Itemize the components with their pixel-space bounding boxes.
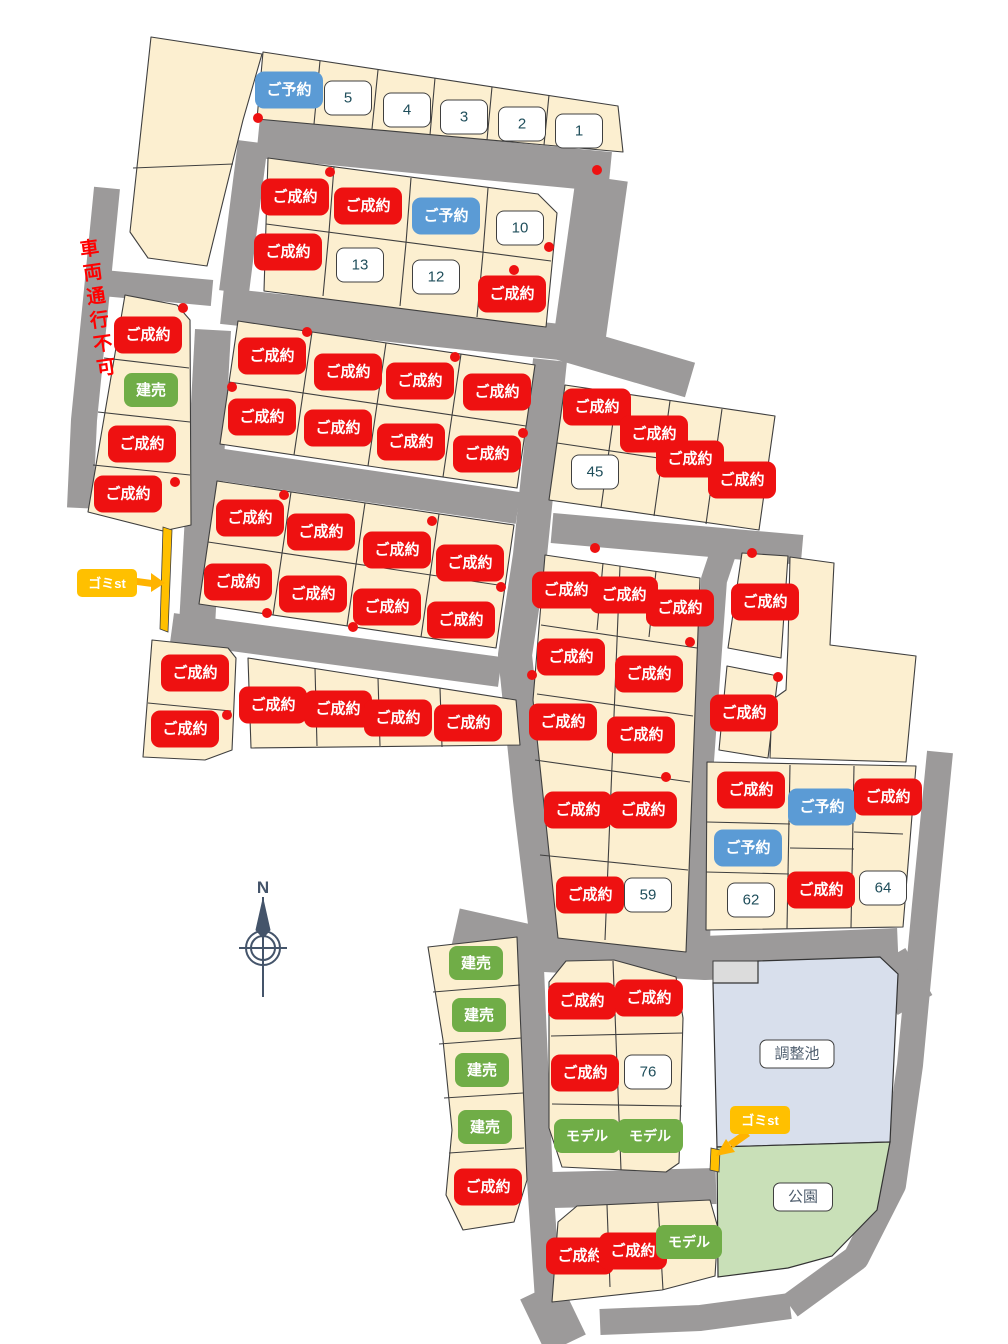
lot-badge-sold: ご成約 <box>544 792 612 829</box>
lot-badge-sold: ご成約 <box>314 354 382 391</box>
lot-badge-model: モデル <box>617 1119 683 1153</box>
lot-badge-sold: ご成約 <box>151 711 219 748</box>
badge-layer: ご予約54321ご成約ご成約ご予約10ご成約1312ご成約ご成約建売ご成約ご成約… <box>0 0 1008 1344</box>
lot-badge-sold: ご成約 <box>94 476 162 513</box>
lot-badge-sold: ご成約 <box>238 338 306 375</box>
lot-badge-num: 1 <box>555 114 603 149</box>
lot-badge-num: 13 <box>336 248 384 283</box>
lot-badge-sold: ご成約 <box>548 983 616 1020</box>
lot-badge-sold: ご成約 <box>228 399 296 436</box>
lot-badge-sold: ご成約 <box>854 779 922 816</box>
lot-badge-reserved: ご予約 <box>714 830 782 867</box>
lot-badge-sold: ご成約 <box>363 532 431 569</box>
lot-badge-sold: ご成約 <box>216 500 284 537</box>
lot-badge-sold: ご成約 <box>364 700 432 737</box>
area-label: 調整池 <box>759 1040 834 1069</box>
lot-badge-sold: ご成約 <box>537 639 605 676</box>
lot-badge-sold: ご成約 <box>161 655 229 692</box>
lot-badge-sold: ご成約 <box>787 872 855 909</box>
lot-badge-sold: ご成約 <box>454 1169 522 1206</box>
lot-badge-sold: ご成約 <box>615 980 683 1017</box>
lot-badge-num: 64 <box>859 871 907 906</box>
lot-badge-built: 建売 <box>452 998 506 1032</box>
lot-badge-built: 建売 <box>449 946 503 980</box>
lot-badge-sold: ご成約 <box>254 234 322 271</box>
lot-badge-sold: ご成約 <box>304 691 372 728</box>
lot-badge-num: 4 <box>383 93 431 128</box>
lot-badge-built: 建売 <box>458 1110 512 1144</box>
lot-badge-sold: ご成約 <box>434 705 502 742</box>
lot-badge-sold: ご成約 <box>529 704 597 741</box>
lot-badge-sold: ご成約 <box>108 426 176 463</box>
garbage-station-badge: ゴミst <box>730 1106 790 1134</box>
lot-badge-num: 3 <box>440 100 488 135</box>
lot-badge-num: 62 <box>727 883 775 918</box>
lot-badge-sold: ご成約 <box>353 589 421 626</box>
lot-badge-reserved: ご予約 <box>788 789 856 826</box>
lot-badge-sold: ご成約 <box>114 317 182 354</box>
lot-badge-sold: ご成約 <box>463 374 531 411</box>
lot-badge-model: モデル <box>656 1225 722 1259</box>
lot-badge-sold: ご成約 <box>708 462 776 499</box>
lot-badge-built: 建売 <box>455 1053 509 1087</box>
lot-badge-num: 45 <box>571 455 619 490</box>
subdivision-lot-map: N ご予約54321ご成約ご成約ご予約10ご成約1312ご成約ご成約建売ご成約ご… <box>0 0 1008 1344</box>
lot-badge-sold: ご成約 <box>239 687 307 724</box>
lot-badge-reserved: ご予約 <box>255 72 323 109</box>
lot-badge-sold: ご成約 <box>731 584 799 621</box>
lot-badge-sold: ご成約 <box>261 179 329 216</box>
lot-badge-num: 5 <box>324 81 372 116</box>
lot-badge-num: 2 <box>498 107 546 142</box>
lot-badge-sold: ご成約 <box>304 410 372 447</box>
lot-badge-sold: ご成約 <box>427 602 495 639</box>
lot-badge-sold: ご成約 <box>386 363 454 400</box>
lot-badge-sold: ご成約 <box>334 188 402 225</box>
garbage-station-badge: ゴミst <box>77 569 137 597</box>
lot-badge-sold: ご成約 <box>204 564 272 601</box>
lot-badge-sold: ご成約 <box>377 424 445 461</box>
lot-badge-built: 建売 <box>124 373 178 407</box>
lot-badge-sold: ご成約 <box>717 772 785 809</box>
lot-badge-sold: ご成約 <box>646 590 714 627</box>
lot-badge-model: モデル <box>554 1119 620 1153</box>
lot-badge-sold: ご成約 <box>453 436 521 473</box>
lot-badge-sold: ご成約 <box>551 1055 619 1092</box>
lot-badge-sold: ご成約 <box>436 545 504 582</box>
lot-badge-sold: ご成約 <box>287 514 355 551</box>
lot-badge-num: 10 <box>496 211 544 246</box>
lot-badge-sold: ご成約 <box>478 276 546 313</box>
lot-badge-num: 12 <box>412 260 460 295</box>
lot-badge-sold: ご成約 <box>710 695 778 732</box>
lot-badge-sold: ご成約 <box>279 576 347 613</box>
lot-badge-num: 76 <box>624 1055 672 1090</box>
area-label: 公園 <box>773 1183 833 1212</box>
lot-badge-sold: ご成約 <box>609 792 677 829</box>
lot-badge-sold: ご成約 <box>607 717 675 754</box>
lot-badge-reserved: ご予約 <box>412 198 480 235</box>
lot-badge-sold: ご成約 <box>556 877 624 914</box>
lot-badge-num: 59 <box>624 878 672 913</box>
lot-badge-sold: ご成約 <box>615 656 683 693</box>
